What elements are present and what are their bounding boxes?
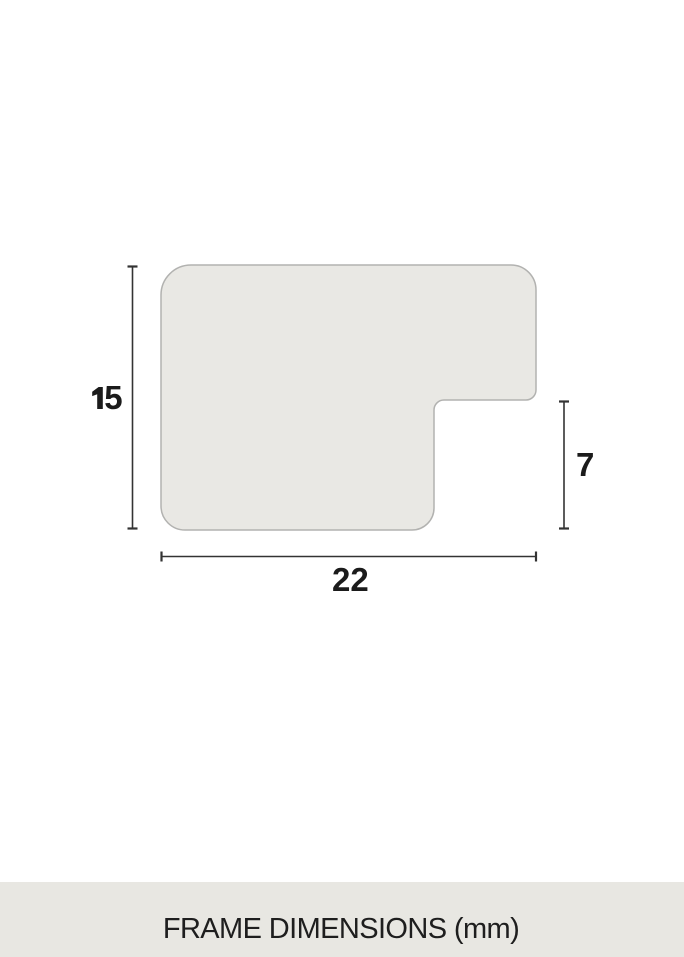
- svg-text:5: 5: [104, 379, 122, 416]
